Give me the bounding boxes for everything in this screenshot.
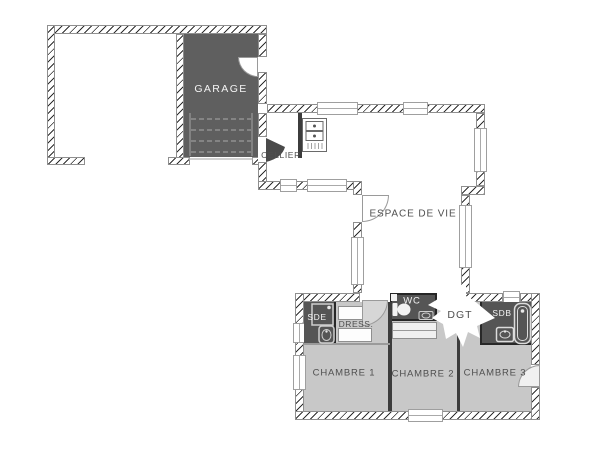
- bathtub-icon: [515, 304, 531, 344]
- dgt-label: DGT: [447, 309, 472, 321]
- sde-label: SDE: [307, 312, 326, 322]
- chambre3-label: CHAMBRE 3: [464, 368, 527, 379]
- wc-label: WC: [403, 296, 420, 307]
- wc-column: [391, 294, 397, 301]
- garage-door-icon: [188, 113, 253, 159]
- garage-label: GARAGE: [194, 83, 247, 95]
- espace-de-vie-label: ESPACE DE VIE: [369, 209, 456, 220]
- fixtures-layer: [0, 0, 600, 450]
- kitchen-sink-icon: [303, 119, 327, 152]
- floor-plan: GARAGE CELLIER ESPACE DE VIE SDE DRESS. …: [0, 0, 600, 450]
- chambre2-label: CHAMBRE 2: [392, 369, 455, 380]
- chambre1-label: CHAMBRE 1: [313, 368, 376, 379]
- dressing-label: DRESS.: [339, 319, 374, 329]
- sdb-label: SDB: [492, 308, 511, 318]
- washbasin-icon: [497, 328, 514, 342]
- washbasin-icon: [419, 312, 433, 320]
- cellier-label: CELLIER: [261, 150, 301, 160]
- washbasin-icon: [319, 326, 334, 343]
